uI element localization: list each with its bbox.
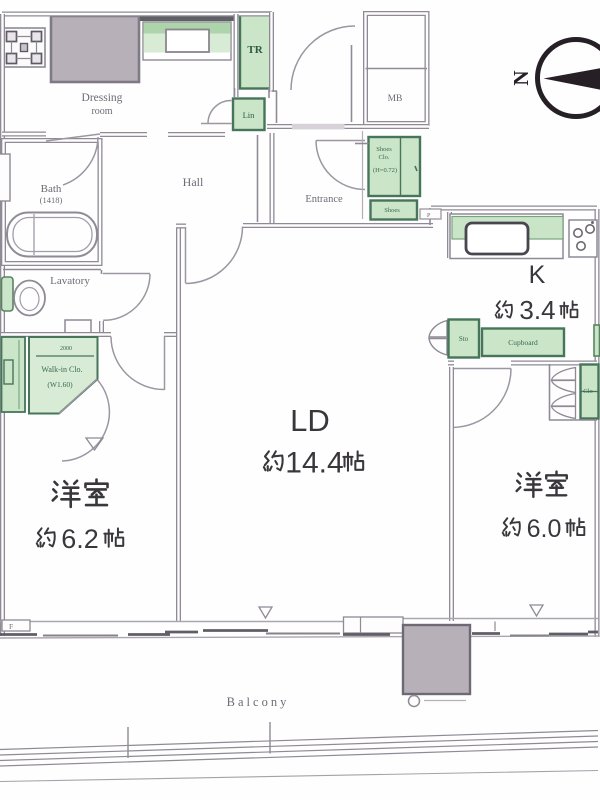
svg-text:Balcony: Balcony [227, 695, 290, 709]
svg-text:Dressing: Dressing [82, 92, 123, 104]
svg-text:6.2: 6.2 [61, 524, 99, 554]
svg-text:Walk-in Clo.: Walk-in Clo. [41, 365, 82, 374]
svg-text:Shoes: Shoes [376, 146, 392, 153]
svg-text:Entrance: Entrance [305, 194, 343, 205]
svg-text:(H=0.72): (H=0.72) [373, 167, 397, 174]
svg-text:F: F [9, 622, 13, 631]
svg-text:Sto: Sto [459, 335, 469, 343]
svg-text:TR: TR [247, 44, 263, 56]
svg-text:3.4: 3.4 [519, 295, 555, 325]
svg-text:Cupboard: Cupboard [508, 338, 538, 347]
svg-text:Lavatory: Lavatory [50, 275, 90, 287]
svg-text:Clo: Clo [583, 388, 592, 395]
svg-text:MB: MB [388, 94, 403, 104]
svg-text:Clo.: Clo. [378, 154, 389, 161]
svg-text:K: K [529, 261, 546, 289]
svg-text:Hall: Hall [183, 175, 204, 189]
svg-text:N: N [509, 70, 533, 85]
svg-text:Bath: Bath [41, 183, 62, 195]
svg-text:(1418): (1418) [40, 195, 63, 205]
svg-text:14.4: 14.4 [285, 447, 343, 480]
svg-text:2000: 2000 [60, 346, 72, 352]
svg-text:Lin: Lin [243, 110, 256, 120]
svg-text:(W1.60): (W1.60) [47, 380, 73, 389]
svg-text:LD: LD [290, 403, 330, 438]
svg-text:6.0: 6.0 [527, 515, 562, 543]
svg-text:room: room [91, 106, 112, 117]
svg-text:Shoes: Shoes [384, 207, 400, 214]
